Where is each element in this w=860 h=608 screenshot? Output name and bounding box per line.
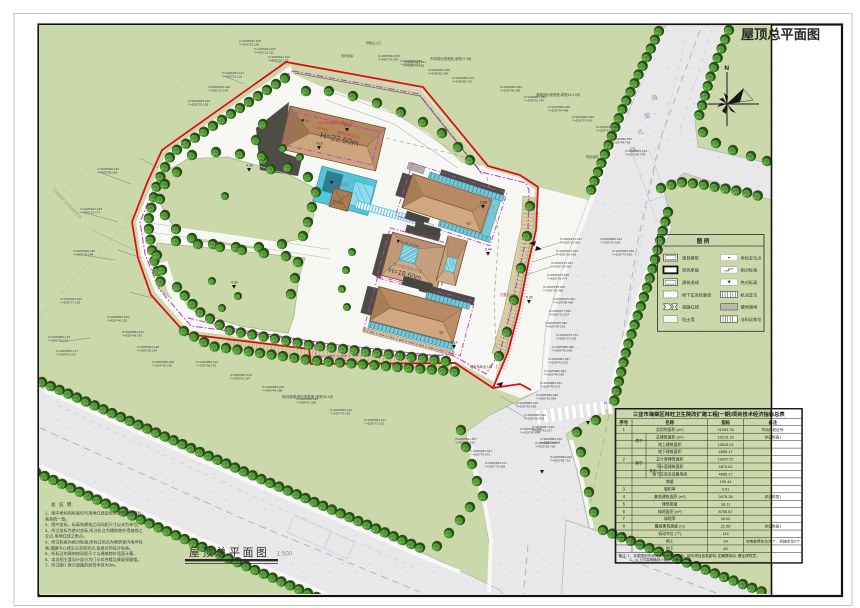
- svg-text:6、本总图主要设计部分为门诊综合楼及康复保健楼。: 6、本总图主要设计部分为门诊综合楼及康复保健楼。: [45, 556, 141, 562]
- svg-text:9.30: 9.30: [526, 296, 533, 300]
- svg-text:总用地面积 (m²): 总用地面积 (m²): [656, 427, 684, 432]
- svg-text:容积率: 容积率: [664, 486, 676, 491]
- svg-text:Y=529773.331: Y=529773.331: [364, 422, 384, 426]
- svg-text:21953.78: 21953.78: [717, 427, 733, 432]
- svg-text:地下: 地下: [666, 546, 674, 551]
- svg-text:N: N: [724, 65, 729, 72]
- svg-text:序号: 序号: [619, 419, 628, 426]
- svg-text:Y=529779.683: Y=529779.683: [485, 465, 505, 469]
- svg-text:0.61: 0.61: [722, 486, 730, 491]
- svg-text:Y=529788.386: Y=529788.386: [500, 89, 520, 93]
- svg-text:Y=529725.485: Y=529725.485: [543, 289, 563, 293]
- svg-text:(±0.000)医院主要出入口: (±0.000)医院主要出入口: [318, 120, 354, 125]
- svg-text:Y=529743.551: Y=529743.551: [548, 361, 568, 365]
- svg-text:坐标定位点: 坐标定位点: [741, 254, 762, 261]
- svg-text:1:500: 1:500: [277, 552, 293, 558]
- svg-text:Y=529746.232: Y=529746.232: [107, 319, 127, 323]
- svg-text:Y=529734.518: Y=529734.518: [545, 325, 565, 329]
- svg-text:Y=529767.309: Y=529767.309: [296, 401, 316, 405]
- svg-text:Y=529794.738: Y=529794.738: [610, 141, 630, 145]
- svg-text:基底建筑面积 (m²): 基底建筑面积 (m²): [654, 494, 686, 499]
- svg-text:190.44: 190.44: [720, 479, 733, 484]
- svg-text:地下车库及设备用房: 地下车库及设备用房: [652, 472, 687, 477]
- svg-text:Y=529782.364: Y=529782.364: [428, 72, 448, 76]
- svg-text:4.30: 4.30: [231, 281, 238, 285]
- svg-text:高;道路中心线交点及转折点,变坡点的设计标高。: 高;道路中心线交点及转折点,变坡点的设计标高。: [45, 544, 133, 550]
- svg-text:Y=529740.210: Y=529740.210: [48, 339, 68, 343]
- svg-text:其中: 其中: [649, 468, 657, 473]
- svg-text:道路绿化带宽度,绿宽26.3.5米: 道路绿化带宽度,绿宽26.3.5米: [536, 92, 581, 97]
- svg-text:5.80: 5.80: [480, 201, 487, 205]
- svg-text:Y=529785.375: Y=529785.375: [452, 80, 472, 84]
- svg-text:40.02: 40.02: [721, 516, 731, 521]
- svg-text:Y=529731.507: Y=529731.507: [549, 313, 569, 317]
- svg-text:Y=529764.298: Y=529764.298: [262, 389, 282, 393]
- svg-text:Y=529719.463: Y=529719.463: [551, 265, 571, 269]
- svg-text:机动车位 (个): 机动车位 (个): [658, 531, 682, 536]
- svg-text:预留出入口: 预留出入口: [366, 40, 381, 45]
- svg-text:Y=529755.595: Y=529755.595: [516, 405, 536, 409]
- svg-text:最高建筑高度 (m): 最高建筑高度 (m): [655, 524, 686, 529]
- svg-text:Y=529734.188: Y=529734.188: [73, 253, 93, 257]
- svg-text:4.10: 4.10: [316, 142, 323, 146]
- svg-text:Y=529758.276: Y=529758.276: [196, 364, 216, 368]
- svg-text:11.04: 11.04: [604, 401, 612, 405]
- svg-text:Y=529737.199: Y=529737.199: [60, 301, 80, 305]
- svg-text:2、以上内容精确到小数点后两位。: 2、以上内容精确到小数点后两位。: [630, 557, 686, 562]
- svg-text:不计容建筑面积: 不计容建筑面积: [656, 464, 683, 469]
- svg-text:Y=529767.639: Y=529767.639: [600, 241, 620, 245]
- svg-text:Y=529731.177: Y=529731.177: [80, 211, 100, 215]
- svg-text:Y=529722.474: Y=529722.474: [547, 277, 567, 281]
- svg-text:18.11: 18.11: [721, 501, 730, 506]
- svg-text:交点,用地红线之角点。: 交点,用地红线之角点。: [45, 533, 87, 539]
- svg-text:Y=529755.265: Y=529755.265: [152, 364, 172, 368]
- svg-text:机动车位: 机动车位: [741, 291, 758, 298]
- svg-text:建筑密度: 建筑密度: [662, 501, 678, 506]
- svg-text:22.58: 22.58: [721, 524, 731, 529]
- svg-text:备注: 备注: [768, 419, 778, 426]
- svg-text:屋顶总平面图: 屋顶总平面图: [741, 26, 820, 42]
- svg-text:规划建筑: 规划建筑: [682, 254, 700, 261]
- svg-text:总计容建筑面积: 总计容建筑面积: [656, 457, 683, 462]
- svg-text:Y=529785.705: Y=529785.705: [535, 445, 555, 449]
- svg-text:硬质铺地: 硬质铺地: [741, 304, 759, 311]
- svg-text:Y=529791.397: Y=529791.397: [524, 99, 544, 103]
- svg-text:1、图中坐标和标高均与用地红线定标系统和地形图标: 1、图中坐标和标高均与用地红线定标系统和地形图标: [45, 510, 141, 516]
- svg-text:Y=529776.342: Y=529776.342: [378, 58, 398, 62]
- svg-text:Y=529752.254: Y=529752.254: [137, 349, 157, 353]
- svg-text:不动产权证号:: 不动产权证号:: [761, 427, 784, 432]
- svg-text:Y=529716.452: Y=529716.452: [556, 253, 576, 257]
- svg-text:充电桩停车位30个、机械车位0个: 充电桩停车位30个、机械车位0个: [746, 539, 800, 544]
- svg-text:非机动车位: 非机动车位: [741, 316, 762, 323]
- svg-text:Y=529713.441: Y=529713.441: [560, 241, 580, 245]
- svg-text:人行出入口: 人行出入口: [452, 296, 468, 301]
- svg-text:绝对标高: 绝对标高: [741, 279, 758, 286]
- svg-text:规划道路绿化带宽度,绿宽38.4米: 规划道路绿化带宽度,绿宽38.4米: [282, 394, 334, 399]
- svg-text:3975.38: 3975.38: [719, 494, 733, 499]
- svg-text:4685.17: 4685.17: [719, 449, 733, 454]
- svg-text:(±0.000): (±0.000): [336, 183, 348, 187]
- svg-text:Y=529770.650: Y=529770.650: [612, 253, 632, 257]
- svg-text:13528.01: 13528.01: [717, 442, 733, 447]
- svg-text:增量: 增量: [666, 479, 674, 484]
- svg-text:道路红线: 道路红线: [682, 304, 700, 311]
- svg-text:其中: 其中: [635, 438, 643, 443]
- svg-text:Y=529788.716: Y=529788.716: [550, 459, 570, 463]
- svg-text:13037.57: 13037.57: [717, 457, 733, 462]
- svg-text:总建筑面积 (m²): 总建筑面积 (m²): [656, 434, 684, 439]
- svg-text:现状原貌: 现状原貌: [682, 267, 700, 274]
- svg-text:Y=529749.573: Y=529749.573: [540, 385, 560, 389]
- svg-text:Y=529737.529: Y=529737.529: [556, 337, 576, 341]
- svg-text:Y=529797.419: Y=529797.419: [572, 119, 592, 123]
- svg-text:名称: 名称: [665, 419, 674, 426]
- svg-text:地上: 地上: [666, 539, 674, 544]
- svg-text:Y=529761.287: Y=529761.287: [230, 377, 250, 381]
- svg-text:总 说 明:: 总 说 明:: [51, 501, 75, 508]
- svg-text:4875.61: 4875.61: [719, 464, 733, 469]
- svg-text:Y=529746.562: Y=529746.562: [544, 373, 564, 377]
- svg-text:屋顶总平面图: 屋顶总平面图: [189, 545, 269, 559]
- svg-text:4、所注标高为绝对标高,所标注的点为建筑室内地坪标: 4、所注标高为绝对标高,所标注的点为建筑室内地坪标: [45, 539, 143, 545]
- svg-text:详见附表1: 详见附表1: [764, 524, 781, 529]
- svg-text:挡土墙: 挡土墙: [682, 316, 695, 323]
- svg-text:3、所注坐标为绝对坐标,所注折点为建筑物外墙轴线之: 3、所注坐标为绝对坐标,所注折点为建筑物外墙轴线之: [45, 527, 143, 533]
- svg-text:地下车库轮廓线: 地下车库轮廓线: [682, 291, 712, 298]
- svg-text:4685.17: 4685.17: [719, 472, 733, 477]
- svg-text:Y=529773.661: Y=529773.661: [455, 441, 475, 445]
- svg-text:19213.18: 19213.18: [717, 434, 733, 439]
- svg-text:8786.87: 8786.87: [719, 509, 733, 514]
- svg-text:Y=529797.749: Y=529797.749: [625, 153, 645, 157]
- svg-text:Y=529743.221: Y=529743.221: [56, 353, 76, 357]
- svg-text:规划绿化: 规划绿化: [586, 154, 600, 159]
- svg-text:绿地率: 绿地率: [664, 516, 676, 521]
- svg-text:Y=529722.144: Y=529722.144: [208, 89, 228, 93]
- svg-text:Y=529782.694: Y=529782.694: [520, 431, 540, 435]
- svg-text:市政绿化带宽度,绿宽57.0米: 市政绿化带宽度,绿宽57.0米: [430, 56, 472, 61]
- svg-text:4.30: 4.30: [246, 164, 253, 168]
- svg-text:Y=529713.111: Y=529713.111: [254, 51, 274, 55]
- svg-text:次要出入口: 次要出入口: [500, 292, 516, 297]
- svg-text:5.10: 5.10: [451, 341, 458, 345]
- svg-text:地上建筑面积: 地上建筑面积: [658, 442, 681, 447]
- svg-text:7、所注图①表示道路的转弯半径为3m。: 7、所注图①表示道路的转弯半径为3m。: [45, 562, 118, 568]
- svg-text:指标: 指标: [721, 419, 730, 426]
- svg-text:详见附表1: 详见附表1: [764, 494, 781, 499]
- svg-text:高系统一致。: 高系统一致。: [45, 515, 70, 521]
- svg-text:114: 114: [722, 531, 729, 536]
- svg-text:Y=529710.100: Y=529710.100: [239, 43, 259, 47]
- svg-text:5、所标注的建筑物间距尺寸以建筑物外墙面计算。: 5、所标注的建筑物间距尺寸以建筑物外墙面计算。: [45, 550, 137, 556]
- svg-text:Y=529752.584: Y=529752.584: [536, 397, 556, 401]
- svg-text:地下车库出入口: 地下车库出入口: [470, 364, 492, 369]
- svg-text:相对标高: 相对标高: [741, 267, 758, 274]
- svg-text:2、图中坐标、标高和建筑之间间距尺寸以米为单位。: 2、图中坐标、标高和建筑之间间距尺寸以米为单位。: [45, 521, 141, 527]
- svg-text:绿地面积 (m²): 绿地面积 (m²): [658, 509, 682, 514]
- svg-text:地下建筑面积: 地下建筑面积: [658, 449, 681, 454]
- svg-text:Y=529728.496: Y=529728.496: [553, 301, 573, 305]
- svg-text:Y=529794.408: Y=529794.408: [548, 109, 568, 113]
- svg-text:Y=529749.243: Y=529749.243: [122, 334, 142, 338]
- svg-text:Y=529725.155: Y=529725.155: [188, 103, 208, 107]
- svg-text:Y=529758.606: Y=529758.606: [524, 417, 544, 421]
- svg-text:其中: 其中: [635, 461, 643, 466]
- svg-text:建筑退线: 建筑退线: [682, 279, 700, 286]
- svg-text:图 例: 图 例: [697, 237, 710, 245]
- svg-text:Y=529776.672: Y=529776.672: [470, 453, 490, 457]
- svg-text:三亚市海棠区林旺卫生院改扩建工程(一期)项目技术经济指标总表: 三亚市海棠区林旺卫生院改扩建工程(一期)项目技术经济指标总表: [633, 410, 786, 418]
- svg-text:Y=529710.430: Y=529710.430: [596, 129, 616, 133]
- svg-text:现状围墙: 现状围墙: [341, 53, 353, 58]
- svg-text:Y=529791.727: Y=529791.727: [400, 63, 420, 67]
- svg-text:Y=529740.540: Y=529740.540: [552, 349, 572, 353]
- svg-text:Y=529770.320: Y=529770.320: [330, 412, 350, 416]
- svg-text:5.44: 5.44: [485, 248, 492, 252]
- svg-text:详见附表1: 详见附表1: [764, 434, 781, 439]
